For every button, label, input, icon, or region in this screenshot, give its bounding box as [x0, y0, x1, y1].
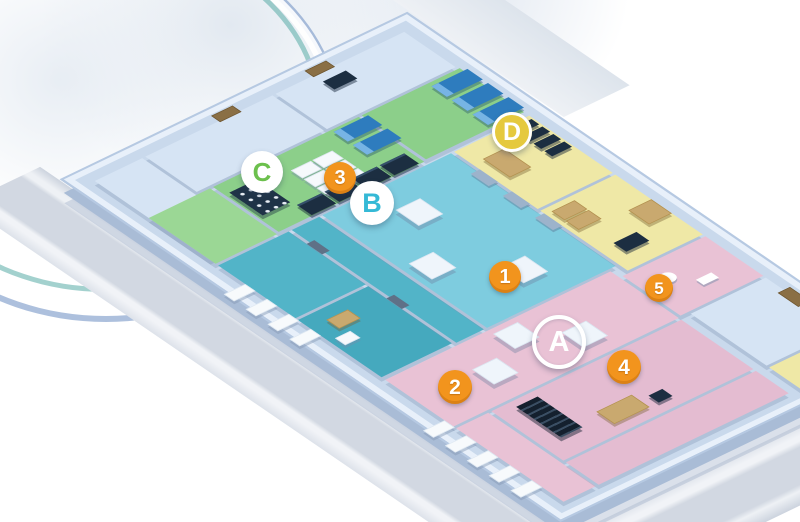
scene: ABCD12345 [0, 0, 800, 522]
